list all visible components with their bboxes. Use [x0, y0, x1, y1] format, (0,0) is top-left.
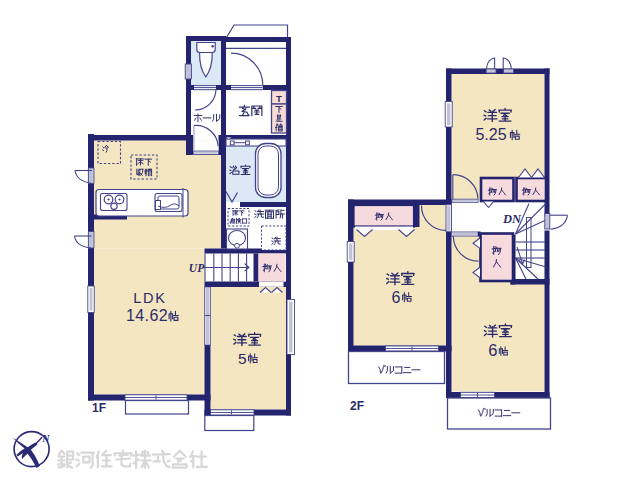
svg-text:6: 6: [392, 289, 401, 306]
svg-text:LDK: LDK: [133, 290, 167, 306]
svg-text:N: N: [41, 433, 50, 444]
svg-text:5: 5: [238, 350, 247, 367]
svg-text:T: T: [276, 93, 282, 104]
svg-text:DN: DN: [502, 212, 522, 226]
svg-text:14.62: 14.62: [126, 307, 168, 324]
svg-text:5.25: 5.25: [475, 126, 506, 143]
svg-text:1F: 1F: [92, 401, 106, 415]
svg-text:2F: 2F: [350, 399, 364, 413]
svg-text:6: 6: [488, 341, 497, 359]
svg-text:UP: UP: [189, 262, 205, 274]
